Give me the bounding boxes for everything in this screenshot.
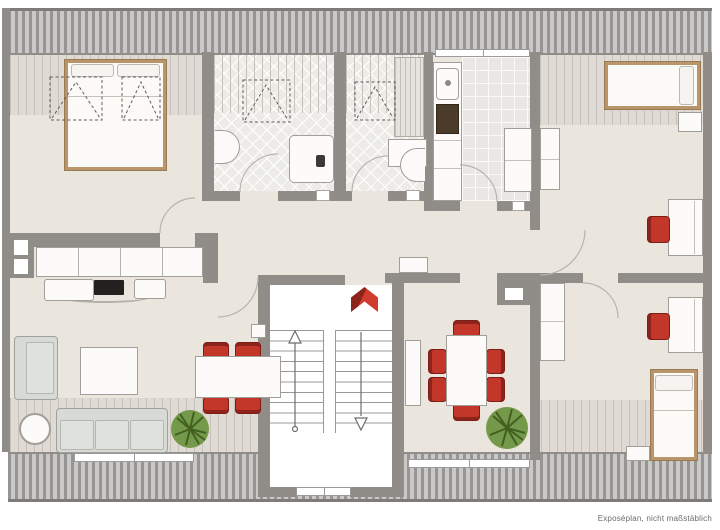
roof-window-symbols [50, 77, 395, 122]
door-arc-bedroom1 [160, 198, 195, 233]
door-arc-bath2 [352, 156, 388, 192]
door-arc-roomB [583, 283, 618, 318]
stair-direction-arrows [289, 331, 367, 432]
door-arcs [160, 154, 618, 318]
roof-window-bath1 [243, 80, 290, 122]
plan-symbol-overlay [0, 0, 720, 530]
stair-up-start [293, 427, 298, 432]
roof-window-bed-right-peak [124, 82, 158, 118]
floor-plan: Exposéplan, nicht maßstäblich [0, 0, 720, 530]
roof-window-bed-left-peak [52, 82, 100, 118]
stair-down-arrowhead [355, 418, 367, 430]
roof-window-bed-right [122, 77, 160, 120]
door-arc-roomA [540, 230, 585, 275]
plant-dining [486, 407, 528, 449]
roof-window-bath1-peak [245, 85, 288, 120]
stair-up-arrowhead [289, 331, 301, 343]
roof-window-bath2-peak [357, 87, 393, 118]
roof-window-bed-left [50, 77, 102, 120]
door-arc-kitchen [460, 165, 497, 202]
plan-caption: Exposéplan, nicht maßstäblich [598, 514, 712, 523]
plant-living [171, 410, 209, 448]
door-arc-living [218, 277, 258, 317]
door-arc-bath1 [240, 154, 278, 192]
